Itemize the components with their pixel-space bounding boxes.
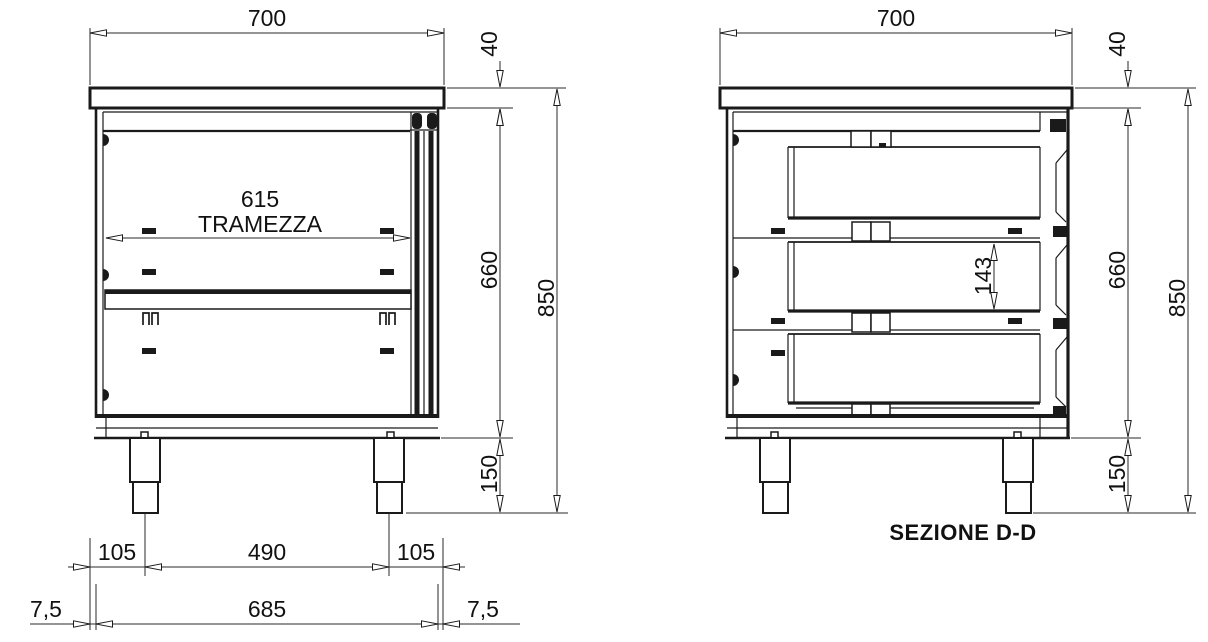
dim-section-top-thickness: 40 (1104, 31, 1130, 57)
section-caption: SEZIONE D-D (889, 520, 1036, 545)
hinge-pin-icon (733, 266, 739, 278)
dim-section-drawer-height: 143 (970, 257, 996, 295)
base-frame (725, 416, 1070, 438)
drawer-2 (788, 242, 1067, 315)
dim-front-top-thickness: 40 (476, 31, 502, 57)
worktop (90, 88, 444, 108)
dim-front-body-height: 660 (476, 251, 502, 289)
dim-section-total-height: 850 (1164, 279, 1190, 317)
dim-front-base-width: 685 (248, 596, 286, 622)
drawer-3 (788, 334, 1067, 408)
drawer-1 (788, 147, 1067, 222)
dim-front-overhang-right: 7,5 (467, 596, 499, 622)
dim-front-leg-offset-left: 105 (98, 539, 136, 565)
hinge-knuckle-icon (412, 113, 422, 129)
dim-front-partition-width: 615 (241, 186, 279, 212)
dim-front-top-width: 700 (248, 5, 286, 31)
drawing-sheet: 700 40 615 TRAMEZZA 660 150 850 (0, 0, 1208, 642)
worktop (720, 88, 1072, 108)
dim-front-leg-height: 150 (476, 455, 502, 493)
label-partition: TRAMEZZA (198, 211, 323, 237)
dim-front-overhang-left: 7,5 (30, 596, 62, 622)
section-dimensions: 700 40 143 660 150 850 SEZIONE D-D (720, 5, 1196, 545)
dim-section-body-height: 660 (1104, 251, 1130, 289)
dim-front-leg-spacing: 490 (248, 539, 286, 565)
leg-left (130, 438, 160, 513)
leg-left (760, 438, 790, 513)
dim-section-leg-height: 150 (1104, 455, 1130, 493)
shelf-tramezza (105, 290, 411, 325)
base-frame (94, 416, 440, 438)
hinge-pin-icon (733, 134, 739, 146)
leg-right (1003, 438, 1033, 513)
door-panel (410, 108, 438, 418)
leg-right (374, 438, 404, 513)
section-view (720, 88, 1072, 513)
hinge-pin-icon (103, 134, 109, 146)
hinge-pin-icon (103, 389, 109, 401)
hinge-pin-icon (103, 269, 109, 281)
hinge-pin-icon (733, 374, 739, 386)
dim-front-total-height: 850 (533, 279, 559, 317)
front-view (90, 88, 444, 513)
hinge-knuckle-icon (427, 113, 437, 129)
dim-front-leg-offset-right: 105 (397, 539, 435, 565)
dim-section-top-width: 700 (877, 5, 915, 31)
